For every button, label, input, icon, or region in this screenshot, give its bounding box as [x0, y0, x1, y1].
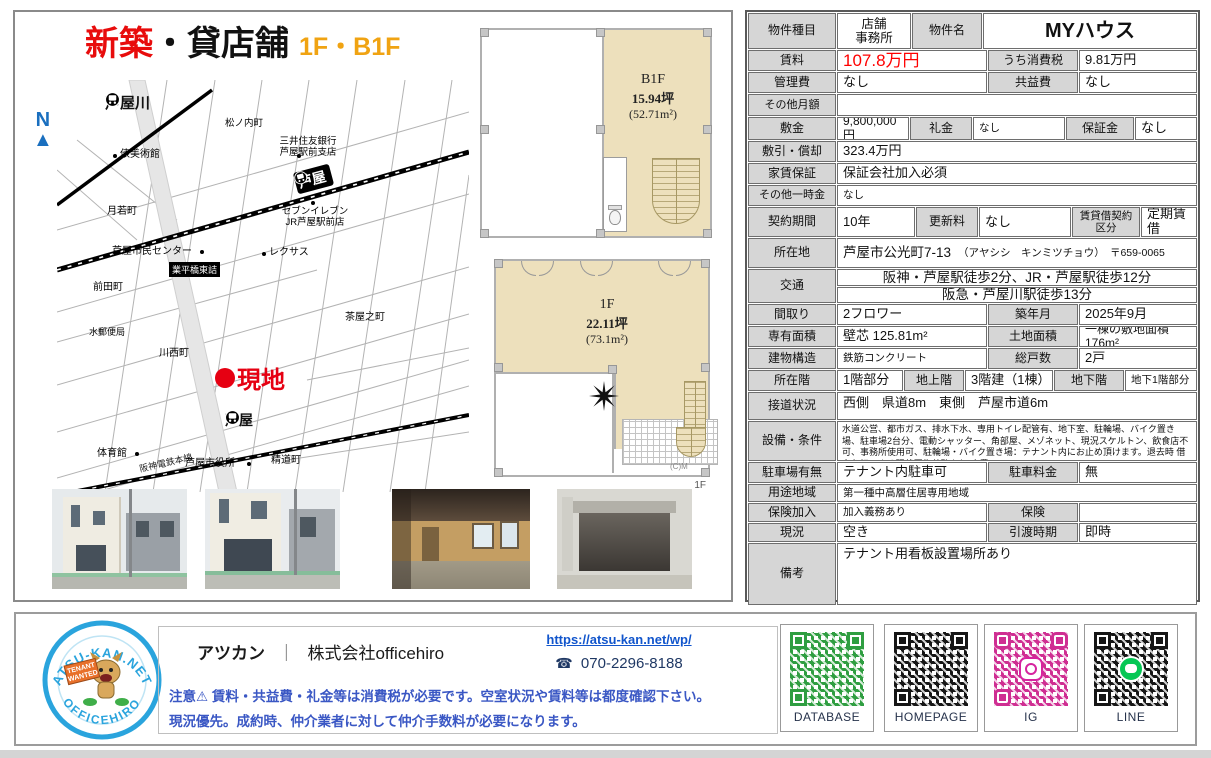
- spec-label: 駐車料金: [988, 462, 1078, 483]
- row-access: 交通 阪神・芦屋駅徒歩2分、JR・芦屋駅徒歩12分 阪急・芦屋川駅徒歩13分: [748, 269, 1197, 303]
- spec-label: 保証金: [1066, 117, 1134, 140]
- photo-building-exterior-1: [52, 489, 187, 589]
- phone-line: ☎ 070-2296-8188: [489, 655, 749, 672]
- spec-label: その他月額: [748, 94, 836, 116]
- spec-value: 一棟の敷地面積176m²: [1079, 326, 1197, 347]
- spec-label: 用途地域: [748, 484, 836, 502]
- line-app-icon: [1118, 656, 1144, 682]
- spec-label: 礼金: [910, 117, 972, 140]
- spec-label: 契約期間: [748, 207, 836, 237]
- spec-value: [837, 94, 1197, 116]
- row-insurance: 保険加入 加入義務あり 保険: [748, 503, 1197, 522]
- location-map: 芦屋川 芦屋 芦屋 松ノ内町: [57, 80, 469, 492]
- map-label-lexus: レクサス: [269, 247, 309, 259]
- homepage-link[interactable]: https://atsu-kan.net/wp/: [489, 632, 749, 647]
- spec-label: 設備・条件: [748, 421, 836, 461]
- row-zoning: 用途地域 第一種中高層住居専用地域: [748, 484, 1197, 502]
- spec-value: テナント内駐車可: [837, 462, 987, 483]
- qr-label: DATABASE: [781, 710, 873, 724]
- company-line: アツカン ｜ 株式会社officehiro: [197, 639, 444, 664]
- spec-label: 地下階: [1054, 370, 1124, 391]
- caution-note-2: 現況優先。成約時、仲介業者に対して仲介手数料が必要になります。: [169, 710, 586, 730]
- spec-value: 西側 県道8m 東側 芦屋市道6m: [837, 392, 1197, 420]
- column: [480, 125, 489, 134]
- photo-garage-entrance: [557, 489, 692, 589]
- spec-label: 敷金: [748, 117, 836, 140]
- spec-value: 店舗 事務所: [837, 13, 911, 49]
- map-label-seido: 精道町: [271, 455, 301, 467]
- hankyu-ashiyagawa-station: 芦屋川: [105, 92, 150, 113]
- row-area: 専有面積 壁芯 125.81m² 土地面積 一棟の敷地面積176m²: [748, 326, 1197, 347]
- spec-value-remarks: テナント用看板設置場所あり: [837, 543, 1197, 605]
- spec-label: 建物構造: [748, 348, 836, 369]
- map-label-seven-eleven: セブンイレブン JR芦屋駅前店: [267, 206, 363, 229]
- spec-label: 地上階: [904, 370, 964, 391]
- spec-value: なし: [837, 185, 1197, 206]
- poi-dot: [135, 452, 139, 456]
- spec-value: 地下1階部分: [1125, 370, 1197, 391]
- north-arrow: N ▲: [33, 110, 53, 150]
- qr-card-line: LINE: [1084, 624, 1178, 732]
- spec-value: 定期賃借: [1141, 207, 1197, 237]
- column: [494, 259, 503, 268]
- separator: ｜: [278, 644, 295, 663]
- access-line-1: 阪神・芦屋駅徒歩2分、JR・芦屋駅徒歩12分: [837, 269, 1197, 286]
- spec-value: 2戸: [1079, 348, 1197, 369]
- column: [703, 125, 712, 134]
- spec-label: 引渡時期: [988, 523, 1078, 542]
- map-label-bank: 三井住友銀行 芦屋駅前支店: [260, 136, 356, 159]
- spec-value: 3階建（1棟）: [965, 370, 1053, 391]
- spec-value: 9.81万円: [1079, 50, 1197, 71]
- spec-value-property-name: MYハウス: [983, 13, 1197, 49]
- poi-dot: [247, 462, 251, 466]
- site-location-marker: 現地: [215, 360, 285, 395]
- phone-icon: ☎: [555, 655, 572, 671]
- column: [703, 229, 712, 238]
- column: [494, 363, 503, 372]
- spec-value-facilities: 水道公営、都市ガス、排水下水、専用トイレ配管有、地下室、駐輪場、バイク置き場、駐…: [837, 421, 1197, 461]
- map-label-chaya: 茶屋之町: [345, 312, 385, 324]
- footer: ATSU-KAN.NET OFFICEHIRO TENANT WANTED アツ…: [14, 612, 1197, 746]
- qr-label: LINE: [1085, 710, 1177, 724]
- spec-value: 加入義務あり: [837, 503, 987, 522]
- spec-label: 敷引・償却: [748, 141, 836, 162]
- map-label-narihira-box: 業平橋東詰: [169, 262, 220, 277]
- access-lines: 阪神・芦屋駅徒歩2分、JR・芦屋駅徒歩12分 阪急・芦屋川駅徒歩13分: [837, 269, 1197, 303]
- column: [480, 28, 489, 37]
- train-station-icon: [225, 410, 240, 425]
- spec-label: 間取り: [748, 304, 836, 325]
- title-rental-shop: ・貸店舗: [153, 25, 289, 63]
- spec-value: 2フロワー: [837, 304, 987, 325]
- b1f-label: B1F 15.94坪 (52.71m²): [594, 72, 712, 122]
- row-road: 接道状況 西側 県道8m 東側 芦屋市道6m: [748, 392, 1197, 420]
- spec-value: 空き: [837, 523, 987, 542]
- spec-label: 賃料: [748, 50, 836, 71]
- qr-label: IG: [985, 710, 1077, 724]
- spec-value: 保証会社加入必須: [837, 163, 1197, 184]
- row-rent: 賃料 107.8万円 うち消費税 9.81万円: [748, 50, 1197, 71]
- map-label-tsukiwaka: 月若町: [107, 206, 137, 218]
- row-status: 現況 空き 引渡時期 即時: [748, 523, 1197, 542]
- qr-label: HOMEPAGE: [885, 710, 977, 724]
- spec-value: 1階部分: [837, 370, 903, 391]
- row-layout: 間取り 2フロワー 築年月 2025年9月: [748, 304, 1197, 325]
- map-credit: (C)M: [670, 462, 688, 471]
- column: [701, 363, 710, 372]
- address-kana-postal: （アヤシシ キンミツチョウ） 〒659-0065: [958, 247, 1165, 259]
- b1f-area-m2: (52.71m²): [594, 107, 712, 122]
- spec-value: 第一種中高層住居専用地域: [837, 484, 1197, 502]
- title-floors: 1F・B1F: [299, 33, 400, 61]
- row-parking: 駐車場有無 テナント内駐車可 駐車料金 無: [748, 462, 1197, 483]
- spec-label: 築年月: [988, 304, 1078, 325]
- row-rent-guarantee: 家賃保証 保証会社加入必須: [748, 163, 1197, 184]
- spec-value-rent: 107.8万円: [837, 50, 987, 71]
- page-title: 新築・貸店舗1F・B1F: [85, 16, 400, 65]
- spec-value: なし: [837, 72, 987, 93]
- qr-card-database: DATABASE: [780, 624, 874, 732]
- map-label-city-hall: 芦屋市役所: [185, 458, 235, 470]
- spec-label: 共益費: [988, 72, 1078, 93]
- row-management-fee: 管理費 なし 共益費 なし: [748, 72, 1197, 93]
- column: [596, 229, 605, 238]
- column: [596, 125, 605, 134]
- north-letter: N: [33, 110, 53, 130]
- qr-card-homepage: HOMEPAGE: [884, 624, 978, 732]
- photo-interior-skeleton: [392, 489, 530, 589]
- row-address: 所在地 芦屋市公光町7-13 （アヤシシ キンミツチョウ） 〒659-0065: [748, 238, 1197, 268]
- photo-building-exterior-2: [205, 489, 340, 589]
- map-label-gym: 体育館: [97, 448, 127, 460]
- qr-code-instagram: [994, 632, 1068, 706]
- spec-label: 所在地: [748, 238, 836, 268]
- spec-label: 接道状況: [748, 392, 836, 420]
- spec-label: 備考: [748, 543, 836, 605]
- map-label-maeda: 前田町: [93, 282, 123, 294]
- address-main: 芦屋市公光町7-13: [843, 245, 951, 261]
- caution-note-1: 注意⚠ 賃料・共益費・礼金等は消費税が必要です。空室状況や賃料等は都度確認下さい…: [169, 685, 710, 705]
- poi-dot: [200, 250, 204, 254]
- 1f-area-m2: (73.1m²): [537, 332, 677, 347]
- hanshin-ashiya-station: 芦屋: [225, 410, 253, 430]
- row-property-type: 物件種目 店舗 事務所 物件名 MYハウス: [748, 13, 1197, 49]
- column: [701, 259, 710, 268]
- poi-dot: [113, 154, 117, 158]
- spec-label: 交通: [748, 269, 836, 303]
- row-remarks: 備考 テナント用看板設置場所あり: [748, 543, 1197, 605]
- spec-value: なし: [979, 207, 1071, 237]
- compass-star-icon: [589, 381, 619, 411]
- spec-label: 更新料: [916, 207, 978, 237]
- 1f-name: 1F: [537, 297, 677, 313]
- spec-label: 物件名: [912, 13, 982, 49]
- property-spec-table: 物件種目 店舗 事務所 物件名 MYハウス 賃料 107.8万円 うち消費税 9…: [745, 10, 1200, 602]
- left-panel: 新築・貸店舗1F・B1F N ▲: [13, 10, 733, 602]
- column: [701, 468, 710, 477]
- spec-value: 即時: [1079, 523, 1197, 542]
- spec-label: 現況: [748, 523, 836, 542]
- row-facilities: 設備・条件 水道公営、都市ガス、排水下水、専用トイレ配管有、地下室、駐輪場、バイ…: [748, 421, 1197, 461]
- spec-value: 鉄筋コンクリート: [837, 348, 987, 369]
- row-other-monthly: その他月額: [748, 94, 1197, 116]
- map-label-matsunouchi: 松ノ内町: [225, 118, 263, 129]
- b1f-area-tsubo: 15.94坪: [594, 88, 712, 107]
- spec-value: [1079, 503, 1197, 522]
- map-label-civic-center: 芦屋市民センター: [112, 246, 192, 258]
- spec-value: なし: [1079, 72, 1197, 93]
- spec-value: 10年: [837, 207, 915, 237]
- spec-value: 323.4万円: [837, 141, 1197, 162]
- row-contract-period: 契約期間 10年 更新料 なし 賃貸借契約 区分 定期賃借: [748, 207, 1197, 237]
- spec-label: 所在階: [748, 370, 836, 391]
- qr-code-homepage: [894, 632, 968, 706]
- row-floor: 所在階 1階部分 地上階 3階建（1棟） 地下階 地下1階部分: [748, 370, 1197, 391]
- row-other-onetime: その他一時金 なし: [748, 185, 1197, 206]
- brand-name: アツカン: [197, 644, 265, 663]
- floorplan-1f: 1F 22.11坪 (73.1m²) 1F: [494, 259, 710, 477]
- b1f-stairs: [652, 158, 700, 224]
- spec-label: 保険: [988, 503, 1078, 522]
- title-new-build: 新築: [85, 25, 153, 63]
- site-dot-icon: [215, 368, 235, 388]
- spec-value: 9,800,000円: [837, 117, 909, 140]
- spec-label: 専有面積: [748, 326, 836, 347]
- b1f-toilet: [603, 157, 627, 232]
- spec-value: なし: [973, 117, 1065, 140]
- spec-value: 2025年9月: [1079, 304, 1197, 325]
- spec-label: その他一時金: [748, 185, 836, 206]
- 1f-label: 1F 22.11坪 (73.1m²): [537, 297, 677, 347]
- company-info-box: アツカン ｜ 株式会社officehiro https://atsu-kan.n…: [158, 626, 778, 734]
- qr-code-line: [1094, 632, 1168, 706]
- spec-label: うち消費税: [988, 50, 1078, 71]
- instagram-icon: [1019, 657, 1043, 681]
- site-label: 現地: [237, 360, 285, 395]
- column: [608, 365, 617, 374]
- company-legal-name: 株式会社officehiro: [307, 644, 444, 663]
- spec-label: 保険加入: [748, 503, 836, 522]
- spec-label: 物件種目: [748, 13, 836, 49]
- train-station-icon: [105, 92, 120, 107]
- spec-label: 賃貸借契約 区分: [1072, 207, 1140, 237]
- spec-label: 家賃保証: [748, 163, 836, 184]
- spec-label: 駐車場有無: [748, 462, 836, 483]
- company-logo: ATSU-KAN.NET OFFICEHIRO TENANT WANTED: [42, 620, 162, 740]
- row-deposit: 敷金 9,800,000円 礼金 なし 保証金 なし: [748, 117, 1197, 140]
- qr-card-instagram: IG: [984, 624, 1078, 732]
- b1f-name: B1F: [594, 72, 712, 88]
- column: [703, 28, 712, 37]
- page-bottom-bar: [0, 750, 1211, 758]
- spec-label: 総戸数: [988, 348, 1078, 369]
- map-label-museum: 俵美術館: [120, 149, 160, 161]
- spec-label: 管理費: [748, 72, 836, 93]
- 1f-area-tsubo: 22.11坪: [537, 313, 677, 332]
- map-label-post-office: 水郵便局: [89, 327, 125, 338]
- map-label-kawanishi: 川西町: [159, 348, 189, 360]
- column: [596, 28, 605, 37]
- spec-value: 無: [1079, 462, 1197, 483]
- toilet-bowl-icon: [609, 210, 621, 225]
- column: [480, 229, 489, 238]
- north-triangle-icon: ▲: [33, 130, 53, 150]
- column: [494, 468, 503, 477]
- access-line-2: 阪急・芦屋川駅徒歩13分: [837, 287, 1197, 304]
- 1f-stairs-run: [684, 381, 706, 429]
- row-amortization: 敷引・償却 323.4万円: [748, 141, 1197, 162]
- spec-label: 土地面積: [988, 326, 1078, 347]
- floorplan-b1f: B1F 15.94坪 (52.71m²): [480, 28, 712, 238]
- flyer-page: 新築・貸店舗1F・B1F N ▲: [0, 0, 1211, 758]
- phone-number: 070-2296-8188: [581, 655, 683, 672]
- poi-dot: [262, 252, 266, 256]
- row-structure: 建物構造 鉄筋コンクリート 総戸数 2戸: [748, 348, 1197, 369]
- poi-dot: [311, 201, 315, 205]
- ashiya-river: [129, 80, 237, 492]
- 1f-stairs-turn: [676, 427, 706, 457]
- spec-value: 壁芯 125.81m²: [837, 326, 987, 347]
- qr-code-database: [790, 632, 864, 706]
- 1f-corner-label: 1F: [694, 480, 706, 491]
- spec-value-address: 芦屋市公光町7-13 （アヤシシ キンミツチョウ） 〒659-0065: [837, 238, 1197, 268]
- spec-value: なし: [1135, 117, 1197, 140]
